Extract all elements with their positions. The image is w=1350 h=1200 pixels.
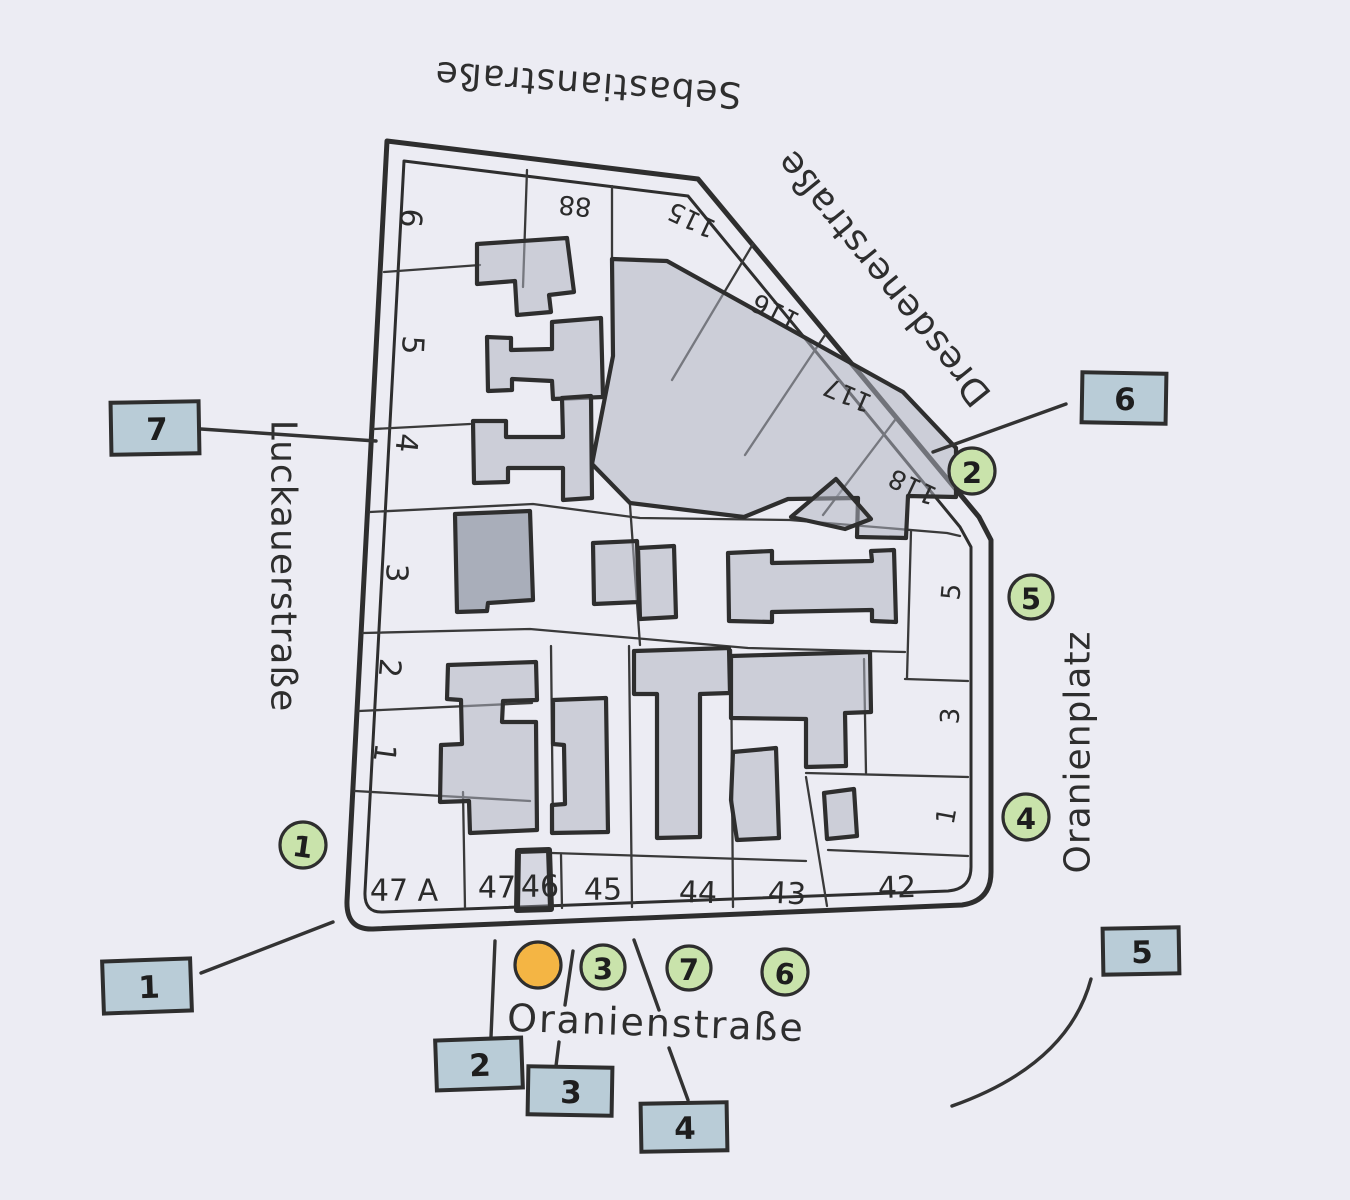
street-label-oranienplatz: Oranienplatz [1058, 631, 1099, 874]
green-marker-number: 5 [1021, 582, 1041, 616]
plot-number: 88 [557, 189, 593, 222]
green-marker-6[interactable]: 6 [762, 949, 808, 995]
plot-number: 47 [478, 871, 516, 906]
plot-number: 42 [877, 870, 916, 906]
plot-number: 46 [521, 870, 559, 905]
plot-number: 3 [378, 563, 414, 583]
blue-label-7[interactable]: 7 [111, 401, 200, 455]
blue-label-number: 6 [1114, 382, 1136, 418]
building-45 [552, 698, 608, 833]
building-upper-hook [477, 238, 574, 315]
green-marker-number: 2 [962, 456, 982, 490]
green-marker-number: 6 [773, 956, 797, 992]
building-dark-square [455, 511, 533, 612]
building-cluster-47 [440, 662, 537, 833]
map-canvas: Sebastianstraße Dresdenerstraße Luckauer… [0, 0, 1350, 1200]
building-42-small [824, 789, 857, 839]
plot-number: 5 [936, 582, 967, 601]
green-marker-number: 3 [593, 952, 613, 986]
plot-number: 6 [392, 207, 428, 228]
green-marker-2[interactable]: 2 [949, 448, 995, 494]
plot-number: 1 [931, 805, 963, 827]
building-mid-rect-b [638, 546, 676, 619]
green-marker-1[interactable]: 1 [280, 822, 326, 868]
building-44-tshape [634, 648, 730, 838]
plot-number: 45 [584, 873, 622, 908]
green-marker-4[interactable]: 4 [1003, 794, 1049, 840]
street-label-luckauerstrasse: Luckauerstraße [263, 420, 304, 713]
blue-label-4[interactable]: 4 [641, 1102, 728, 1151]
orange-marker-circle [515, 942, 561, 988]
green-marker-3[interactable]: 3 [581, 945, 625, 989]
orange-marker[interactable] [515, 942, 561, 988]
building-bone-shape [728, 550, 896, 622]
green-marker-7[interactable]: 7 [667, 946, 711, 990]
plot-number: 47 A [370, 874, 439, 909]
blue-label-2[interactable]: 2 [435, 1038, 523, 1091]
blue-label-number: 1 [138, 970, 161, 1007]
green-marker-5[interactable]: 5 [1009, 575, 1053, 619]
blue-label-1[interactable]: 1 [102, 958, 192, 1013]
plot-number: 3 [936, 707, 967, 725]
green-marker-number: 7 [679, 953, 699, 987]
building-mid-rect-a [593, 541, 639, 604]
block-map-drawing: Sebastianstraße Dresdenerstraße Luckauer… [0, 0, 1350, 1200]
street-label-sebastianstrasse: Sebastianstraße [433, 53, 742, 115]
plot-number: 2 [371, 657, 408, 679]
blue-label-3[interactable]: 3 [528, 1066, 613, 1115]
blue-label-number: 3 [560, 1075, 582, 1111]
plot-numbers-right-column: 5 3 1 [931, 582, 968, 826]
plot-number: 5 [394, 335, 430, 356]
buildings [440, 238, 956, 910]
building-hammer [473, 396, 592, 500]
blue-label-number: 7 [146, 412, 168, 448]
green-marker-number: 4 [1016, 802, 1036, 836]
blue-label-number: 4 [674, 1111, 696, 1147]
blue-label-5[interactable]: 5 [1103, 927, 1180, 974]
blue-label-number: 5 [1131, 935, 1153, 971]
plot-numbers-bottom-row: 47 A 47 46 45 44 43 42 [370, 870, 917, 913]
plot-number: 43 [767, 876, 807, 913]
blue-label-number: 2 [469, 1048, 492, 1085]
building-43-lower [731, 748, 779, 840]
plot-number: 44 [678, 875, 717, 911]
blue-label-6[interactable]: 6 [1082, 372, 1167, 423]
building-left-arm [487, 318, 603, 399]
plot-number: 4 [388, 432, 425, 455]
